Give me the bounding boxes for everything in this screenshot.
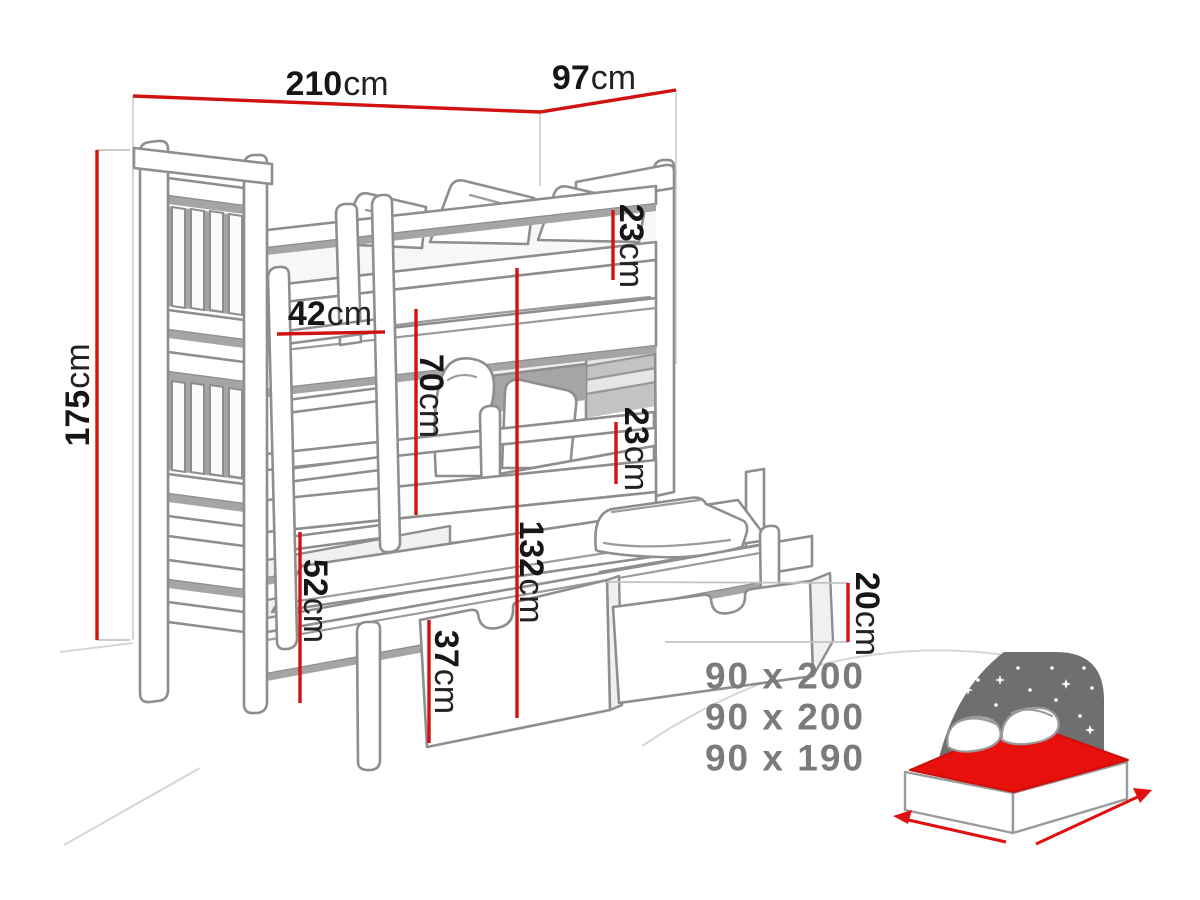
mattress-size-icon <box>893 652 1152 844</box>
dim-clearance-label: 70cm <box>414 354 448 438</box>
mattress-size-item: 90 x 200 <box>705 656 865 697</box>
dim-trundle-height-label: 52cm <box>298 559 332 643</box>
bed-line-drawing <box>0 0 1200 900</box>
mattress-size-list: 90 x 200 90 x 200 90 x 190 <box>705 656 865 779</box>
headboard <box>134 141 272 713</box>
dim-drawer-front-label: 37cm <box>429 630 463 714</box>
dim-drawer-side-label: 20cm <box>850 572 884 656</box>
dim-depth-label: 97cm <box>552 61 636 95</box>
icon-bed <box>893 708 1152 844</box>
dim-length-label: 210cm <box>285 67 388 101</box>
dim-top-bunk-height-label: 132cm <box>514 520 548 623</box>
mattress-size-item: 90 x 200 <box>705 697 865 738</box>
mattress-size-item: 90 x 190 <box>705 738 865 779</box>
dim-top-guard-label: 23cm <box>614 204 648 288</box>
dim-middle-guard-label: 23cm <box>619 407 653 491</box>
dim-height-label: 175cm <box>61 343 95 446</box>
dim-ladder-width-label: 42cm <box>288 297 372 331</box>
bunk-bed-dimension-diagram: 210cm 97cm 175cm 23cm 42cm 70cm 23cm 132… <box>0 0 1200 900</box>
